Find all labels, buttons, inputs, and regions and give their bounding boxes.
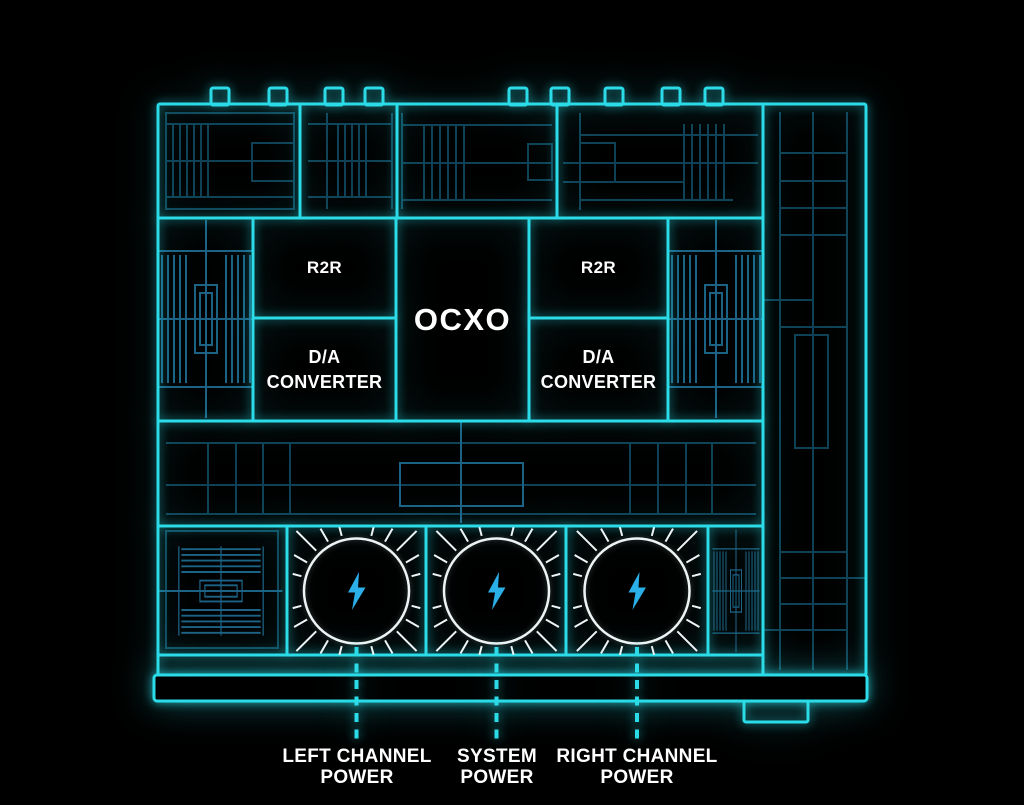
chassis-outline xyxy=(154,88,867,722)
power-circle-system xyxy=(433,527,561,655)
chassis-base-bar xyxy=(154,675,867,701)
transformer-glyphs xyxy=(159,220,763,652)
power-circle-left xyxy=(293,527,421,655)
lightning-bolt-icon xyxy=(348,572,366,610)
amplifier-internals-diagram: R2R OCXO R2R D/A CONVERTER D/A CONVERTER… xyxy=(0,0,1024,805)
lightning-bolt-icon xyxy=(629,572,647,610)
power-circle-right xyxy=(573,527,701,655)
transformer-icon xyxy=(713,530,760,653)
transformer-icon xyxy=(160,546,283,635)
internals-diagram-svg xyxy=(0,0,1024,805)
transformer-icon xyxy=(669,220,763,418)
power-supplies xyxy=(293,527,701,655)
top-pins xyxy=(211,88,723,105)
lightning-bolt-icon xyxy=(488,572,506,610)
pcb-detail-lines xyxy=(166,112,866,670)
transformer-icon xyxy=(159,220,253,418)
